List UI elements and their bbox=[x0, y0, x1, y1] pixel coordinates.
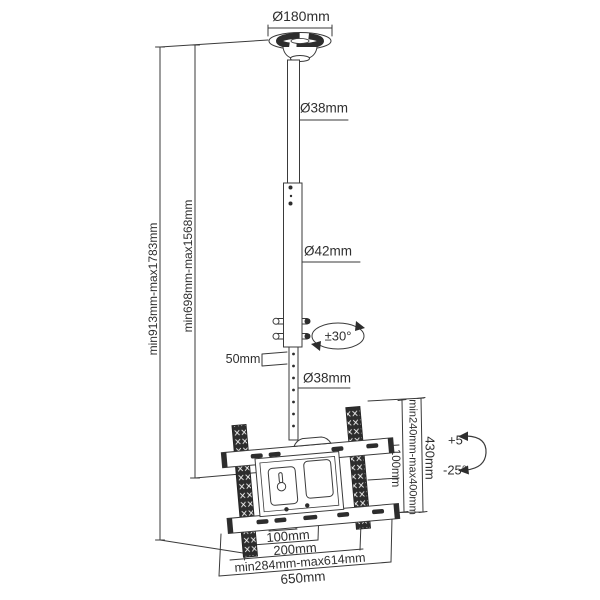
vesa-height-range-label: min240mm-max400mm bbox=[407, 399, 418, 515]
diagram-line-art bbox=[0, 0, 600, 600]
vesa-vertical-pitch-label: 100mm bbox=[388, 449, 400, 487]
plate-diameter-label: Ø180mm bbox=[272, 9, 330, 23]
hole-spacing-bracket bbox=[262, 352, 287, 366]
ceiling-plate bbox=[269, 33, 331, 62]
ceiling-mount-diagram: Ø180mm Ø38mm Ø42mm ±30° 50mm Ø38mm min91… bbox=[0, 0, 600, 600]
tv-bracket-assembly bbox=[218, 404, 402, 558]
upper-pole-diameter-label: Ø38mm bbox=[300, 101, 348, 115]
top-extension-line bbox=[160, 40, 268, 47]
bottom-extension-line-1 bbox=[160, 540, 243, 553]
hole-spacing-label: 50mm bbox=[226, 353, 261, 366]
tilt-down-label: -25° bbox=[443, 464, 467, 477]
lower-pole-diameter-label: Ø38mm bbox=[303, 371, 351, 385]
rail-width-label: 650mm bbox=[280, 570, 326, 587]
bracket-height-label: 430mm bbox=[424, 436, 437, 479]
keyhole-slot bbox=[277, 482, 286, 491]
middle-pole-tube bbox=[284, 183, 303, 347]
pole-height-range-label: min698mm-max1568mm bbox=[182, 200, 194, 333]
vesa-plate bbox=[255, 452, 344, 517]
total-height-range-label: min913mm-max1783mm bbox=[147, 223, 159, 356]
tilt-up-label: +5° bbox=[448, 434, 468, 447]
middle-pole-diameter-label: Ø42mm bbox=[304, 244, 352, 258]
left-strap bbox=[232, 424, 257, 557]
upper-pole-tube bbox=[288, 60, 300, 183]
swivel-range-label: ±30° bbox=[325, 330, 352, 343]
